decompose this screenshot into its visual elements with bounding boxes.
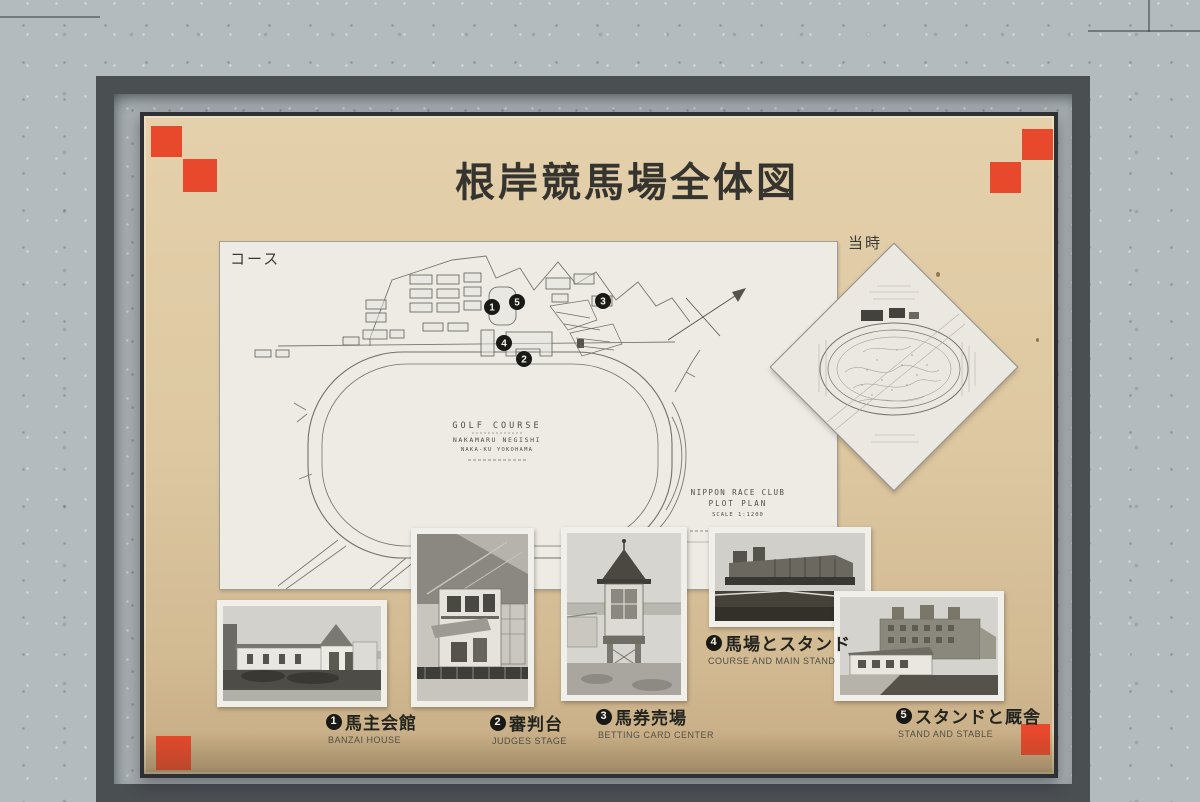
caption-en-1: BANZAI HOUSE (328, 735, 417, 745)
photo-banzai-house (217, 600, 387, 707)
number-badge-3: 3 (596, 709, 612, 725)
plan-corner-text: NIPPON RACE CLUB PLOT PLAN SCALE 1:1200 (691, 488, 786, 518)
signboard: 根岸競馬場全体図 (140, 112, 1058, 778)
plot-plan-label: PLOT PLAN (709, 499, 768, 508)
caption-en-5: STAND AND STABLE (898, 729, 1041, 739)
number-badge-2: 2 (490, 715, 506, 731)
golf-course-label: GOLF COURSE (452, 421, 541, 431)
caption-jp-1: 馬主会館 (345, 709, 417, 734)
number-badge-1: 1 (326, 714, 342, 730)
race-track-inner (322, 364, 658, 546)
caption-banzai-house: 1 馬主会館 BANZAI HOUSE (326, 709, 417, 745)
number-badge-5: 5 (896, 708, 912, 724)
photo-judges-stage (411, 528, 534, 707)
photo-stand-stable-image (840, 597, 998, 695)
old-map-drawing (807, 280, 981, 454)
caption-stand-stable: 5 スタンドと厩舎 STAND AND STABLE (896, 703, 1041, 739)
age-speck (936, 272, 940, 277)
scale-label: SCALE 1:1200 (712, 512, 764, 518)
old-map-content (807, 280, 981, 454)
caption-en-2: JUDGES STAGE (492, 736, 567, 746)
age-speck (1036, 338, 1039, 342)
nakamaru-negishi-label: NAKAMARU NEGISHI (453, 436, 541, 444)
wall-joint-line (1088, 30, 1200, 32)
contour-lines (845, 346, 941, 402)
compass-arrow (668, 288, 746, 340)
old-map-stand (889, 308, 905, 318)
photo-betting-center-image (567, 533, 681, 695)
number-badge-4: 4 (706, 635, 722, 651)
old-map-building (909, 312, 919, 319)
nippon-race-club-label: NIPPON RACE CLUB (691, 488, 786, 497)
course-label: コース (230, 248, 280, 269)
corner-mark-bottom-left (156, 736, 191, 770)
paddock-outlines (550, 300, 622, 356)
map-marker-3-number: 3 (600, 297, 606, 308)
caption-betting-center: 3 馬券売場 BETTING CARD CENTER (596, 704, 714, 740)
map-dot-texture (861, 349, 927, 395)
caption-jp-2: 審判台 (509, 710, 563, 735)
caption-course-stand: 4 馬場とスタンド COURSE AND MAIN STAND (706, 630, 851, 666)
naka-ku-yokohama-label: NAKA-KU YOKOHAMA (461, 447, 533, 453)
wall-joint-line (0, 16, 100, 18)
photo-stand-stable (834, 591, 1004, 701)
caption-jp-3: 馬券売場 (615, 704, 687, 729)
caption-en-4: COURSE AND MAIN STAND (708, 656, 851, 666)
period-label: 当時 (848, 232, 882, 253)
caption-en-3: BETTING CARD CENTER (598, 730, 714, 740)
page-title: 根岸競馬場全体図 (172, 150, 1082, 208)
plan-center-text: GOLF COURSE NAKAMARU NEGISHI NAKA-KU YOK… (452, 421, 541, 453)
photo-judges-stage-image (417, 534, 528, 701)
photo-betting-center (561, 527, 687, 701)
map-marker-5-number: 5 (514, 298, 520, 309)
caption-jp-5: スタンドと厩舎 (915, 703, 1041, 728)
wall-joint-line (1148, 0, 1150, 32)
map-marker-4-number: 4 (501, 339, 507, 350)
map-marker-2-number: 2 (521, 355, 527, 366)
caption-judges-stage: 2 審判台 JUDGES STAGE (490, 710, 567, 746)
map-marker-1-number: 1 (489, 303, 495, 314)
photo-banzai-house-image (223, 606, 381, 701)
old-map-stand (861, 310, 883, 321)
caption-jp-4: 馬場とスタンド (725, 630, 851, 655)
